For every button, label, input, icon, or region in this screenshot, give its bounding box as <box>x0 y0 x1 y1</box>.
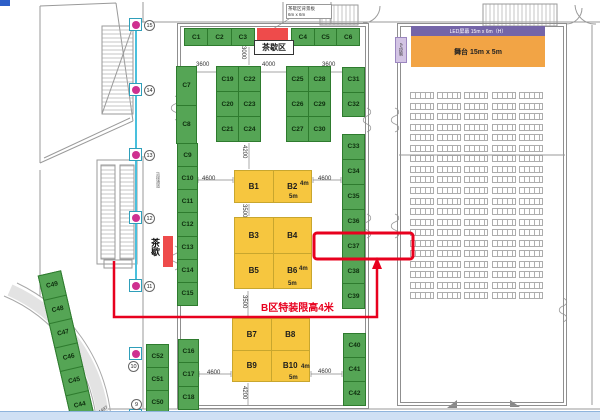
seat-bench <box>437 176 461 183</box>
booth: C14 <box>178 260 197 282</box>
dim-3500-b: 3500 <box>241 295 247 308</box>
seat-bench <box>410 261 434 268</box>
seat-bench <box>464 145 488 152</box>
dim-4000: 4000 <box>262 62 275 68</box>
seat-bench <box>437 124 461 131</box>
seat-bench <box>437 282 461 289</box>
booth: C5 <box>315 29 337 45</box>
seat-bench <box>437 145 461 152</box>
seat-bench <box>437 261 461 268</box>
booth-grid-c19-c24: C19C22C20C23C21C24 <box>216 66 261 142</box>
seat-bench <box>519 155 543 162</box>
seat-bench <box>464 103 488 110</box>
height-limit-note: B区特装限高4米 <box>261 299 334 314</box>
seat-bench <box>519 292 543 299</box>
seat-bench <box>519 261 543 268</box>
booth: C22 <box>239 67 260 91</box>
booth-row-c4-c6: C4C5C6 <box>291 28 360 46</box>
seat-bench <box>492 198 516 205</box>
dim-4600-c: 4600 <box>207 370 220 376</box>
booth: C23 <box>239 92 260 116</box>
booth: C37 <box>343 234 364 258</box>
dim-4600-b: 4600 <box>318 176 331 182</box>
led-screen: LED屏幕 15m x 6m（H） <box>411 26 545 36</box>
seat-bench <box>410 134 434 141</box>
seat-bench <box>492 219 516 226</box>
seat-bench <box>464 250 488 257</box>
seat-bench <box>464 155 488 162</box>
booth: C19 <box>217 67 238 91</box>
seat-bench <box>464 198 488 205</box>
seat-bench <box>437 219 461 226</box>
seat-bench <box>519 166 543 173</box>
stage: 舞台 15m x 5m <box>411 36 545 67</box>
seat-bench <box>492 229 516 236</box>
marker-11 <box>129 279 142 292</box>
seat-bench <box>464 92 488 99</box>
seat-bench <box>410 292 434 299</box>
booth: C17 <box>179 363 198 385</box>
seat-bench <box>437 271 461 278</box>
seat-bench <box>519 187 543 194</box>
booth: C51 <box>147 368 168 390</box>
marker-11-number: 11 <box>144 281 155 292</box>
booth: C41 <box>344 358 365 381</box>
booth-col-c40-c42: C40C41C42 <box>343 333 366 406</box>
seat-bench <box>519 271 543 278</box>
marker-13 <box>129 148 142 161</box>
booth: B1 <box>235 171 273 202</box>
booth-grid-c25-c30: C25C28C26C29C27C30 <box>286 66 331 142</box>
booth: C27 <box>287 117 308 141</box>
tea-break-annotation-line2: 6m x 6m <box>288 12 330 18</box>
booth: C50 <box>147 391 168 413</box>
booth: B3 <box>235 218 273 253</box>
booth: C29 <box>309 92 330 116</box>
dim-3500-a: 3500 <box>241 204 247 217</box>
b6-width-note: 4m <box>299 266 308 272</box>
seat-bench <box>519 134 543 141</box>
dim-4600-a: 4600 <box>202 176 215 182</box>
seat-bench <box>410 250 434 257</box>
booth: C10 <box>178 167 197 189</box>
booth: C28 <box>309 67 330 91</box>
booth: C24 <box>239 117 260 141</box>
seat-bench <box>464 219 488 226</box>
seat-bench <box>464 187 488 194</box>
tea-break-annotation: 茶歇区背景板 6m x 6m <box>286 4 332 19</box>
seat-bench <box>464 240 488 247</box>
seat-bench <box>464 282 488 289</box>
booth-col-c52-c50: C52C51C50 <box>146 344 169 414</box>
b10-depth-note: 5m <box>289 375 298 381</box>
seat-bench <box>464 113 488 120</box>
seat-bench <box>464 176 488 183</box>
booth-col-c9-c15: C9C10C11C12C13C14C15 <box>177 143 198 306</box>
seat-bench <box>437 292 461 299</box>
seat-bench <box>464 124 488 131</box>
booth: C4 <box>292 29 314 45</box>
dim-4200-b: 4200 <box>241 386 247 399</box>
seat-bench <box>492 176 516 183</box>
seat-bench <box>492 113 516 120</box>
booth: C52 <box>147 345 168 367</box>
booth: C30 <box>309 117 330 141</box>
seat-bench <box>464 208 488 215</box>
seat-bench <box>492 187 516 194</box>
booth: B9 <box>233 351 271 382</box>
b2-width-note: 4m <box>300 181 309 187</box>
corridor-note: 货梯通道 <box>155 172 161 188</box>
marker-15 <box>129 18 142 31</box>
booth-col-c7-c8: C7C8 <box>176 66 197 144</box>
seat-bench <box>410 92 434 99</box>
booth: C31 <box>343 68 364 92</box>
seat-bench <box>519 92 543 99</box>
seat-bench <box>410 240 434 247</box>
seat-bench <box>410 103 434 110</box>
seat-bench <box>519 176 543 183</box>
seat-bench <box>464 166 488 173</box>
booth: B4 <box>274 218 312 253</box>
seat-bench <box>492 250 516 257</box>
seat-bench <box>437 155 461 162</box>
seat-bench <box>492 261 516 268</box>
b10-width-note: 4m <box>301 364 310 370</box>
seat-bench <box>519 219 543 226</box>
booth: C18 <box>179 387 198 409</box>
seat-bench <box>437 240 461 247</box>
seat-bench <box>437 103 461 110</box>
b2-depth-note: 5m <box>289 194 298 200</box>
booth: C21 <box>217 117 238 141</box>
booth: C3 <box>232 29 254 45</box>
seat-bench <box>410 155 434 162</box>
booth: C34 <box>343 160 364 184</box>
seat-bench <box>464 229 488 236</box>
seat-bench <box>519 124 543 131</box>
seat-bench <box>492 166 516 173</box>
seat-bench <box>464 134 488 141</box>
seat-bench <box>437 208 461 215</box>
seat-bench <box>410 145 434 152</box>
seat-bench <box>464 261 488 268</box>
seat-bench <box>492 271 516 278</box>
exhibition-floor-plan: C1C2C3 C4C5C6 C7C8 C19C22C20C23C21C24 C2… <box>0 0 600 420</box>
seat-bench <box>519 229 543 236</box>
booth: C36 <box>343 210 364 234</box>
marker-12 <box>129 211 142 224</box>
seat-bench <box>492 145 516 152</box>
marker-13-number: 13 <box>144 150 155 161</box>
booth: C40 <box>344 334 365 357</box>
seat-bench <box>410 229 434 236</box>
booth: C38 <box>343 259 364 283</box>
seat-bench <box>410 271 434 278</box>
booth: C33 <box>343 135 364 159</box>
booth: C7 <box>177 67 196 105</box>
seat-bench <box>519 282 543 289</box>
marker-14 <box>129 83 142 96</box>
booth: C9 <box>178 144 197 166</box>
booth: C16 <box>179 340 198 362</box>
booth-col-c33-c39: C33C34C35C36C37C38C39 <box>342 134 365 309</box>
seat-bench <box>492 155 516 162</box>
bottom-scrollbar[interactable] <box>0 411 600 420</box>
av-control-label: AV控制 <box>395 37 407 63</box>
booth: C12 <box>178 213 197 235</box>
seat-bench <box>410 187 434 194</box>
booth: C35 <box>343 185 364 209</box>
booth: C2 <box>208 29 230 45</box>
seat-bench <box>410 166 434 173</box>
seat-bench <box>437 92 461 99</box>
marker-10-number: 10 <box>128 361 139 372</box>
seat-bench <box>492 240 516 247</box>
seat-bench <box>410 124 434 131</box>
seat-bench <box>492 103 516 110</box>
marker-9-number: 9 <box>131 399 142 410</box>
seat-bench <box>519 250 543 257</box>
corner-accent <box>0 0 10 6</box>
marker-14-number: 14 <box>144 85 155 96</box>
seat-bench <box>437 250 461 257</box>
dim-3000: 3000 <box>240 46 246 59</box>
seat-bench <box>519 198 543 205</box>
booth-col-c31-c32: C31C32 <box>342 67 365 117</box>
seat-bench <box>410 198 434 205</box>
booth-block-b7-b10: B7B8B9B10 <box>232 318 310 382</box>
tea-break-side-rect <box>163 236 173 267</box>
booth-col-c16-c18: C16C17C18 <box>178 339 199 410</box>
dim-3600-b: 3600 <box>322 62 335 68</box>
booth: C39 <box>343 284 364 308</box>
booth: C26 <box>287 92 308 116</box>
booth: B7 <box>233 319 271 350</box>
seat-bench <box>519 113 543 120</box>
seat-bench <box>519 103 543 110</box>
booth: C8 <box>177 106 196 144</box>
seat-bench <box>492 292 516 299</box>
seat-bench <box>492 282 516 289</box>
seat-bench <box>519 240 543 247</box>
seat-bench <box>437 187 461 194</box>
seat-bench <box>437 198 461 205</box>
booth: C25 <box>287 67 308 91</box>
seat-bench <box>464 271 488 278</box>
booth-block-b3-b6: B3B4B5B6 <box>234 217 312 289</box>
marker-15-number: 15 <box>144 20 155 31</box>
booth: C42 <box>344 382 365 405</box>
booth: C20 <box>217 92 238 116</box>
booth: B8 <box>272 319 310 350</box>
seat-bench <box>410 208 434 215</box>
booth: C6 <box>337 29 359 45</box>
dim-3600-a: 3600 <box>196 62 209 68</box>
seat-bench <box>437 229 461 236</box>
booth: C11 <box>178 190 197 212</box>
seat-bench <box>492 92 516 99</box>
booth-row-c1-c3: C1C2C3 <box>184 28 255 46</box>
seat-bench <box>492 208 516 215</box>
b6-depth-note: 5m <box>288 281 297 287</box>
marker-10 <box>129 347 142 360</box>
marker-12-number: 12 <box>144 213 155 224</box>
dim-4600-d: 4600 <box>318 369 331 375</box>
seat-bench <box>492 134 516 141</box>
seat-bench <box>410 176 434 183</box>
booth: C13 <box>178 237 197 259</box>
seat-bench <box>437 134 461 141</box>
tea-break-side-label: 茶歇 <box>149 238 162 256</box>
tea-break-label: 茶歇区 <box>254 40 294 55</box>
booth: C1 <box>185 29 207 45</box>
seat-bench <box>519 208 543 215</box>
seat-bench <box>492 124 516 131</box>
seat-bench <box>410 219 434 226</box>
seat-bench <box>410 113 434 120</box>
dim-4200-a: 4200 <box>241 145 247 158</box>
seat-bench <box>519 145 543 152</box>
seat-bench <box>437 166 461 173</box>
seat-bench <box>410 282 434 289</box>
seat-bench <box>464 292 488 299</box>
booth: C32 <box>343 93 364 117</box>
seat-bench <box>437 113 461 120</box>
booth: B5 <box>235 254 273 289</box>
booth: C15 <box>178 283 197 305</box>
